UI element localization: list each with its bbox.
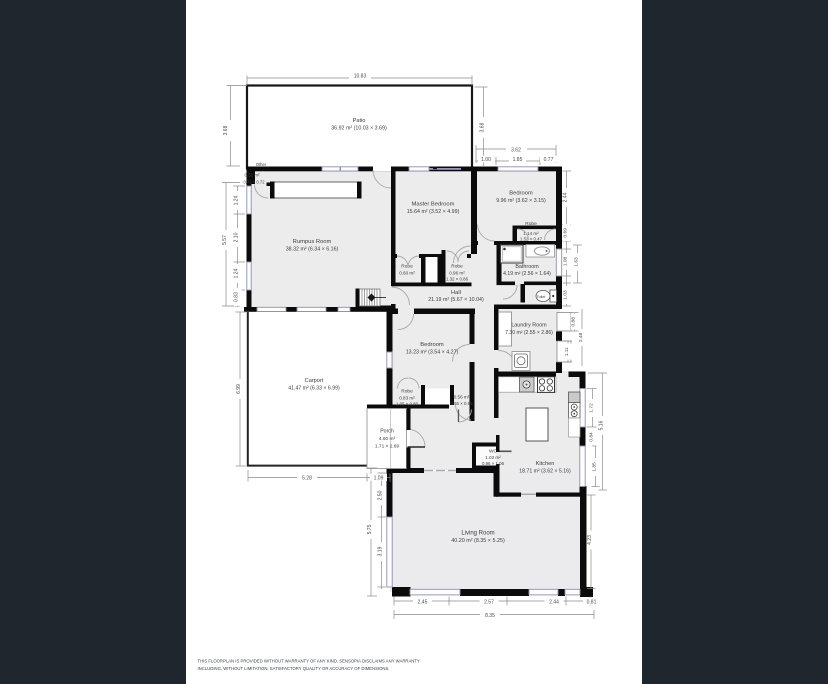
- svg-text:1.71 × 2.69: 1.71 × 2.69: [375, 444, 399, 450]
- svg-text:0.83: 0.83: [233, 292, 239, 302]
- svg-text:Bedroom: Bedroom: [509, 191, 533, 197]
- svg-text:2.10: 2.10: [233, 232, 239, 242]
- svg-text:Hall: Hall: [451, 290, 461, 296]
- svg-text:38.32 m² (6.34 × 6.16): 38.32 m² (6.34 × 6.16): [286, 247, 339, 253]
- svg-text:9.96 m² (3.62 × 3.15): 9.96 m² (3.62 × 3.15): [496, 198, 546, 204]
- svg-text:10.83: 10.83: [354, 74, 367, 80]
- svg-text:8.35: 8.35: [485, 613, 495, 619]
- svg-text:0.56 m²: 0.56 m²: [454, 395, 470, 400]
- svg-text:0.65 × 0.86: 0.65 × 0.86: [450, 401, 473, 406]
- svg-text:WC: WC: [489, 449, 498, 455]
- svg-text:1.08: 1.08: [562, 257, 568, 267]
- svg-text:Rumpus Room: Rumpus Room: [293, 239, 332, 245]
- svg-text:Bathroom: Bathroom: [515, 264, 539, 270]
- svg-text:5.28: 5.28: [302, 476, 312, 482]
- svg-text:0.60 m²: 0.60 m²: [399, 271, 415, 276]
- svg-text:3.68: 3.68: [480, 122, 486, 132]
- svg-text:0.52 m²: 0.52 m²: [245, 173, 260, 178]
- svg-text:2.48: 2.48: [578, 333, 584, 343]
- svg-text:5.75: 5.75: [367, 524, 373, 534]
- svg-text:1.05 × 0.80: 1.05 × 0.80: [396, 402, 419, 407]
- svg-text:2.57: 2.57: [484, 600, 494, 606]
- svg-text:40.20 m² (8.35 × 5.25): 40.20 m² (8.35 × 5.25): [451, 538, 505, 544]
- svg-text:1.85: 1.85: [591, 462, 597, 472]
- svg-text:Robe: Robe: [401, 389, 413, 395]
- svg-text:4.19 m² (2.56 × 1.64): 4.19 m² (2.56 × 1.64): [503, 271, 551, 277]
- svg-text:1.09: 1.09: [374, 476, 384, 482]
- svg-text:0.77: 0.77: [544, 157, 554, 163]
- svg-text:3.62: 3.62: [511, 147, 521, 153]
- svg-text:Master Bedroom: Master Bedroom: [412, 202, 455, 208]
- svg-text:Bedroom: Bedroom: [420, 342, 444, 348]
- svg-text:0.96 m²: 0.96 m²: [449, 271, 465, 276]
- svg-text:1.11: 1.11: [564, 347, 570, 356]
- svg-text:0.96 × 1.06: 0.96 × 1.06: [482, 461, 505, 466]
- svg-text:1.00: 1.00: [481, 157, 491, 163]
- svg-text:13.23 m² (3.54 × 4.27): 13.23 m² (3.54 × 4.27): [406, 350, 459, 356]
- svg-text:Kitchen: Kitchen: [536, 461, 555, 467]
- svg-text:2.44: 2.44: [549, 600, 559, 606]
- svg-text:21.19 m² (5.67 × 10.04): 21.19 m² (5.67 × 10.04): [428, 297, 484, 303]
- svg-text:Laundry Room: Laundry Room: [511, 323, 547, 329]
- svg-text:0.88: 0.88: [570, 317, 576, 327]
- svg-text:4.60 m²: 4.60 m²: [379, 436, 396, 442]
- svg-text:Other: Other: [256, 162, 267, 167]
- svg-text:1.03: 1.03: [562, 290, 568, 300]
- svg-text:1.02 m²: 1.02 m²: [485, 455, 501, 460]
- svg-text:1.24: 1.24: [233, 195, 239, 205]
- svg-text:Robe: Robe: [451, 264, 463, 270]
- svg-text:36.92 m² (10.03 × 3.69): 36.92 m² (10.03 × 3.69): [331, 126, 387, 132]
- svg-text:Patio: Patio: [353, 118, 366, 124]
- svg-text:1.52 × 0.47: 1.52 × 0.47: [520, 237, 543, 242]
- svg-text:41.47 m² (6.33 × 6.99): 41.47 m² (6.33 × 6.99): [288, 386, 340, 392]
- svg-text:0.81: 0.81: [587, 600, 597, 606]
- svg-text:15.64 m² (3.52 × 4.99): 15.64 m² (3.52 × 4.99): [407, 209, 460, 215]
- svg-text:2.45: 2.45: [418, 600, 428, 606]
- svg-text:Toilet: Toilet: [537, 295, 547, 299]
- svg-text:1.32 × 0.86: 1.32 × 0.86: [446, 277, 469, 282]
- svg-text:Robe: Robe: [401, 264, 413, 270]
- svg-text:0.84: 0.84: [588, 432, 594, 442]
- svg-text:4.23: 4.23: [587, 535, 593, 545]
- svg-text:1.24: 1.24: [233, 268, 239, 278]
- svg-text:THIS FLOORPLAN IS PROVIDED WIT: THIS FLOORPLAN IS PROVIDED WITHOUT WARRA…: [198, 659, 420, 664]
- svg-text:5.16: 5.16: [598, 420, 604, 430]
- svg-text:Living Room: Living Room: [461, 531, 494, 537]
- svg-text:2.50: 2.50: [377, 490, 383, 500]
- svg-text:18.71 m² (3.62 × 5.16): 18.71 m² (3.62 × 5.16): [519, 469, 571, 475]
- svg-text:1.72: 1.72: [588, 403, 594, 413]
- svg-text:INCLUDING, WITHOUT LIMITATION,: INCLUDING, WITHOUT LIMITATION, SATISFACT…: [198, 666, 390, 671]
- svg-text:1.85: 1.85: [513, 157, 523, 163]
- svg-text:6.99: 6.99: [236, 384, 242, 394]
- svg-text:1.14 m²: 1.14 m²: [523, 231, 539, 236]
- svg-text:0.83 m²: 0.83 m²: [399, 396, 415, 401]
- svg-text:3.19: 3.19: [377, 546, 383, 556]
- svg-text:3.68: 3.68: [223, 125, 229, 135]
- svg-text:Carport: Carport: [305, 378, 324, 384]
- svg-text:Porch: Porch: [380, 429, 394, 435]
- svg-text:7.30 m² (2.55 × 2.86): 7.30 m² (2.55 × 2.86): [505, 330, 553, 336]
- svg-text:5.57: 5.57: [222, 235, 228, 245]
- svg-text:0.69: 0.69: [562, 228, 568, 238]
- svg-text:0.73 × 0.72: 0.73 × 0.72: [243, 180, 265, 185]
- svg-text:1.63: 1.63: [573, 257, 579, 267]
- svg-text:2.44: 2.44: [562, 192, 568, 202]
